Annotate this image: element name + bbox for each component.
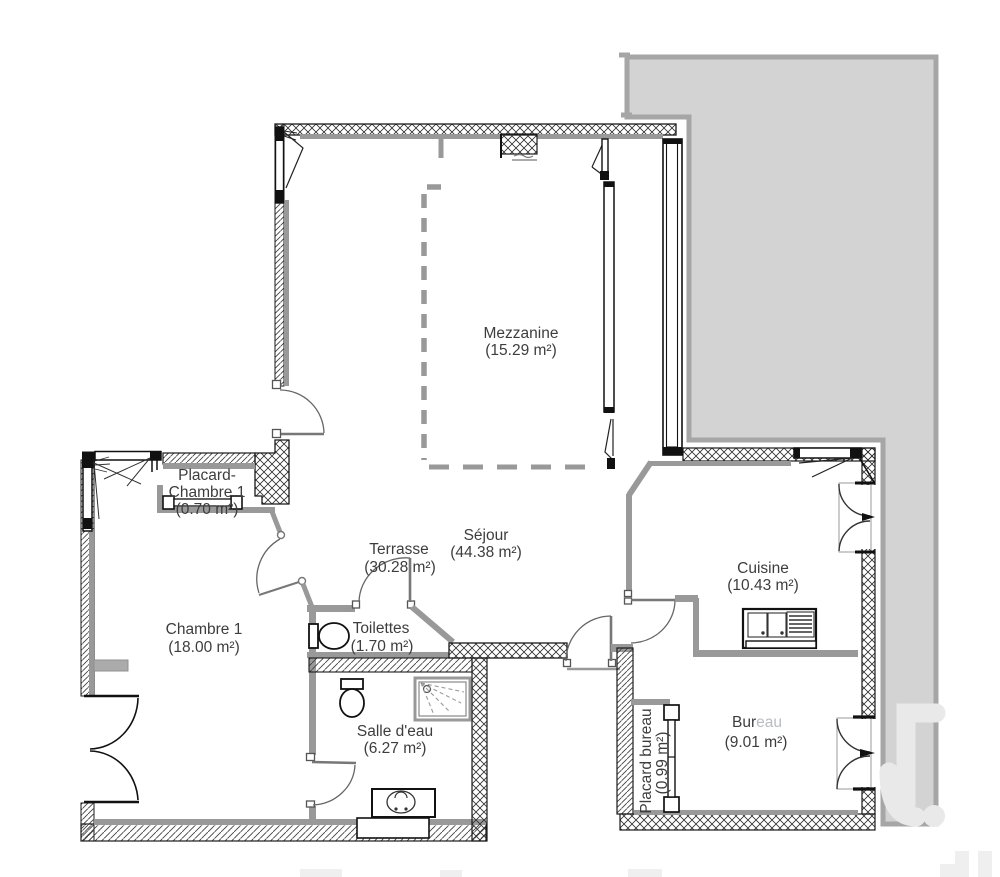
- svg-text:Salle d'eau: Salle d'eau: [357, 723, 433, 740]
- svg-text:(10.43 m²): (10.43 m²): [727, 577, 799, 594]
- svg-text:(44.38 m²): (44.38 m²): [450, 544, 522, 561]
- svg-text:(30.28 m²): (30.28 m²): [364, 559, 436, 576]
- svg-text:(0.70 m²): (0.70 m²): [176, 501, 239, 518]
- svg-text:(15.29 m²): (15.29 m²): [485, 342, 557, 359]
- svg-text:(1.70 m²): (1.70 m²): [351, 638, 414, 655]
- svg-text:Terrasse: Terrasse: [369, 541, 428, 558]
- svg-text:(9.01 m²): (9.01 m²): [725, 734, 788, 751]
- svg-text:Mezzanine: Mezzanine: [484, 325, 559, 342]
- svg-text:Chambre 1: Chambre 1: [166, 621, 243, 638]
- svg-text:Toilettes: Toilettes: [353, 620, 410, 637]
- svg-text:Placard bureau: Placard bureau: [638, 708, 655, 813]
- svg-text:Séjour: Séjour: [464, 527, 509, 544]
- svg-text:Bureau: Bureau: [732, 714, 782, 731]
- svg-text:(6.27 m²): (6.27 m²): [364, 740, 427, 757]
- svg-text:Cuisine: Cuisine: [737, 560, 789, 577]
- svg-text:Chambre 1: Chambre 1: [169, 484, 246, 501]
- svg-text:Placard-: Placard-: [178, 467, 236, 484]
- svg-text:(18.00 m²): (18.00 m²): [168, 639, 240, 656]
- svg-text:(0.99 m²): (0.99 m²): [654, 732, 671, 795]
